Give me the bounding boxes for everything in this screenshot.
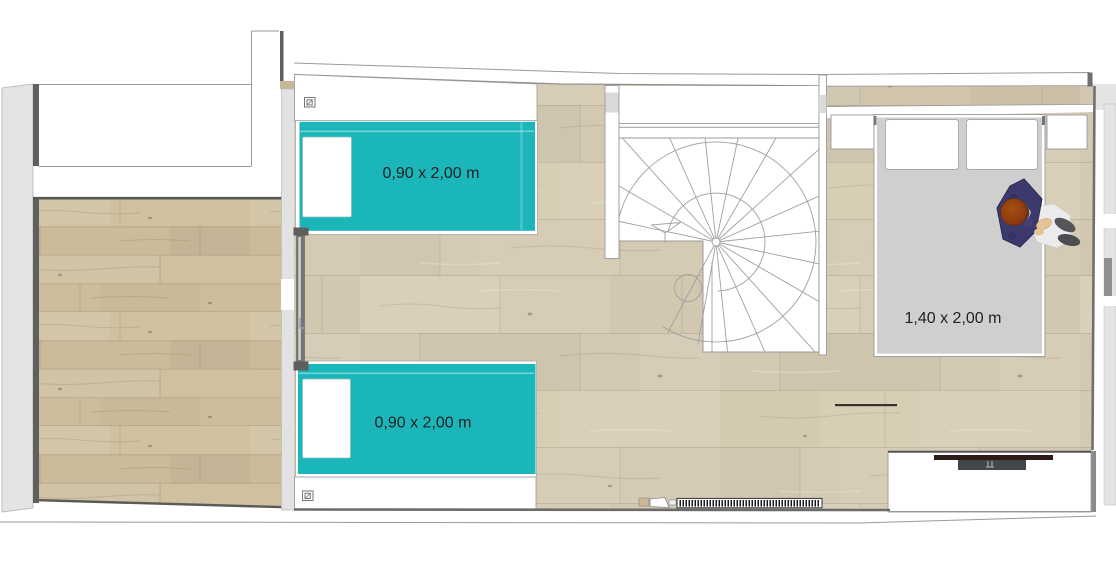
svg-text:1,40 x 2,00 m: 1,40 x 2,00 m xyxy=(905,310,1002,327)
svg-text:0,90 x 2,00 m: 0,90 x 2,00 m xyxy=(383,165,480,182)
svg-text:0,90 x 2,00 m: 0,90 x 2,00 m xyxy=(375,415,472,432)
